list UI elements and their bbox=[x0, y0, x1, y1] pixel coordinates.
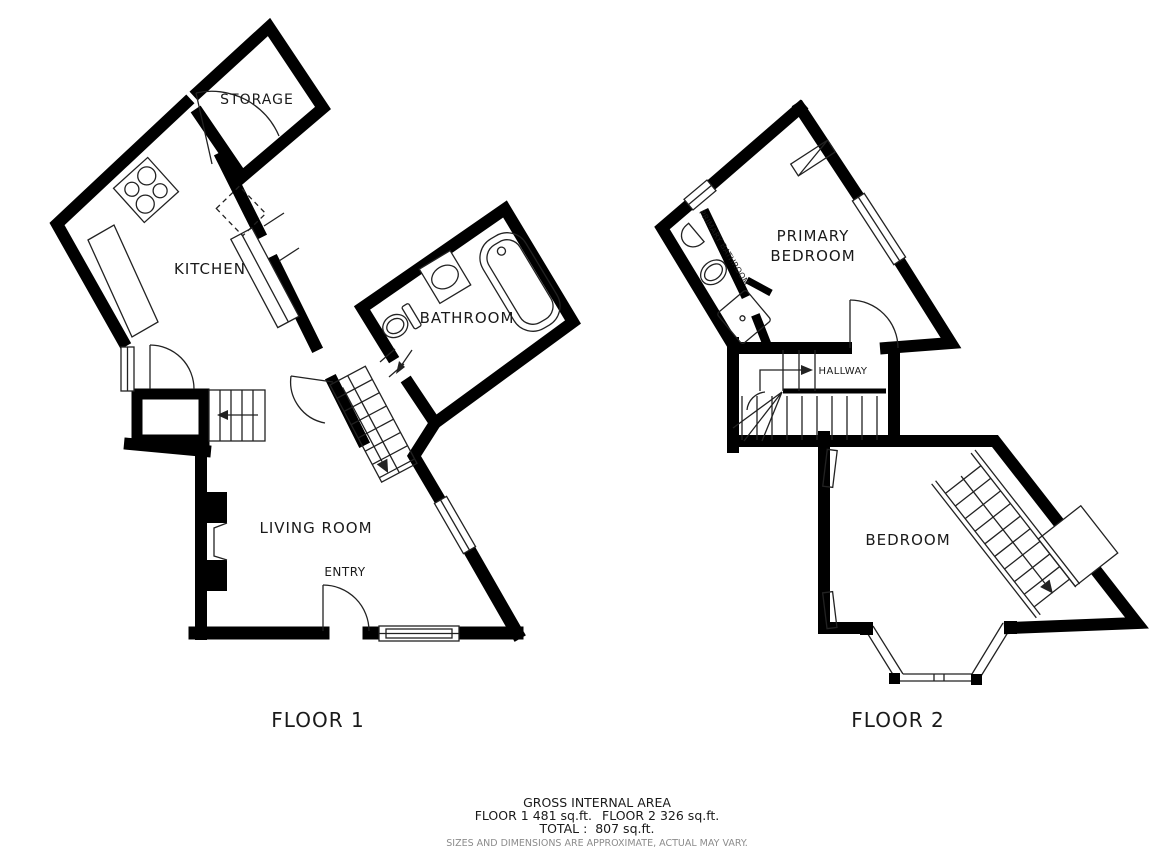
hallway-label: HALLWAY bbox=[819, 366, 868, 377]
storage-label: STORAGE bbox=[220, 92, 294, 108]
opening-casing bbox=[264, 213, 299, 261]
bathroom-label: BATHROOM bbox=[420, 309, 515, 327]
window-icon bbox=[379, 626, 459, 641]
floorplan-page: STORAGE KITCHEN BATHROOM LIVING ROOM ENT… bbox=[0, 0, 1153, 850]
hallway-arrow-icon bbox=[760, 365, 813, 391]
stairs-icon bbox=[733, 350, 886, 441]
entry-label: ENTRY bbox=[324, 565, 365, 579]
door-arc-icon bbox=[150, 345, 194, 389]
window-icon bbox=[684, 180, 716, 210]
kitchen-label: KITCHEN bbox=[174, 260, 246, 278]
primary-bathroom-label: PRIMARY BATHROOM bbox=[697, 208, 751, 287]
window-icon bbox=[852, 193, 905, 264]
door-arc-icon bbox=[291, 376, 333, 423]
stairs-icon bbox=[209, 390, 265, 441]
fireplace-block-top bbox=[201, 492, 227, 523]
window-icon bbox=[434, 496, 475, 553]
disclaimer-text: SIZES AND DIMENSIONS ARE APPROXIMATE, AC… bbox=[446, 838, 747, 849]
door-arc-icon bbox=[323, 585, 369, 631]
bedroom-label: BEDROOM bbox=[865, 531, 950, 549]
kitchen-counter bbox=[88, 225, 158, 337]
fireplace-block-bottom bbox=[201, 560, 227, 591]
bay-window-icon bbox=[860, 621, 1017, 685]
living-room-label: LIVING ROOM bbox=[259, 519, 372, 537]
fireplace-niche bbox=[214, 523, 227, 560]
floor2-plan: PRIMARY BEDROOM PRIMARY BATHROOM HALLWAY… bbox=[662, 108, 1137, 732]
footer-area-summary: GROSS INTERNAL AREA FLOOR 1 481 sq.ft. F… bbox=[446, 795, 747, 849]
closet-room bbox=[137, 394, 204, 440]
floor2-title: FLOOR 2 bbox=[851, 708, 944, 732]
floor1-plan: STORAGE KITCHEN BATHROOM LIVING ROOM ENT… bbox=[57, 27, 573, 732]
primary-bedroom-label-line1: PRIMARY bbox=[777, 227, 850, 245]
window-icon bbox=[121, 347, 134, 391]
floor1-title: FLOOR 1 bbox=[271, 708, 364, 732]
total-area-text: TOTAL : 807 sq.ft. bbox=[538, 821, 654, 836]
door-arc-icon bbox=[850, 300, 898, 348]
floorplan-canvas: STORAGE KITCHEN BATHROOM LIVING ROOM ENT… bbox=[0, 0, 1153, 850]
primary-bedroom-label-line2: BEDROOM bbox=[770, 247, 855, 265]
